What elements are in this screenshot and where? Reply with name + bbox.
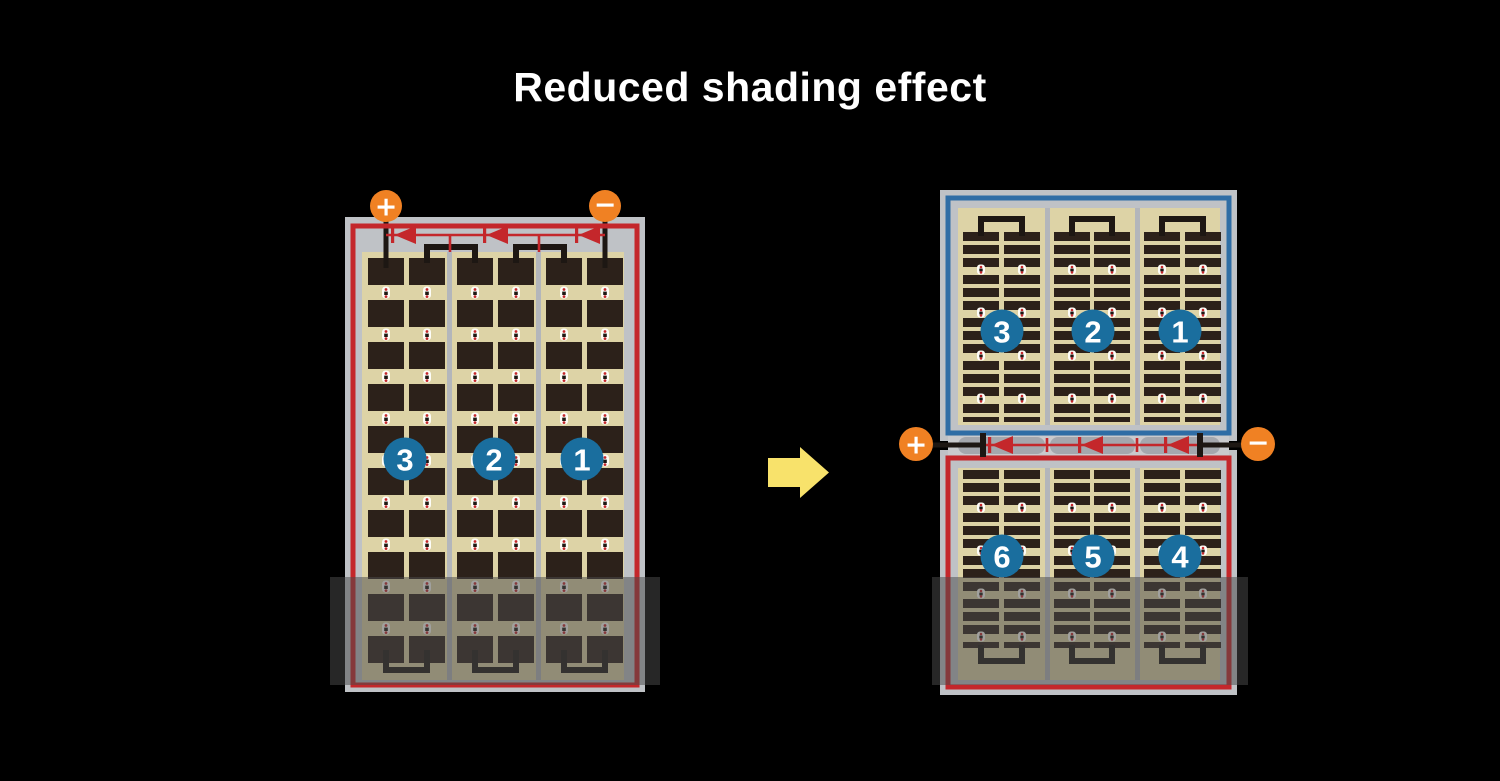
string-badge-label: 5 <box>1084 540 1101 575</box>
string-badge: 2 <box>1072 310 1115 353</box>
transform-arrow-icon <box>768 447 829 498</box>
string-badge: 1 <box>1159 310 1202 353</box>
string-badge: 4 <box>1159 535 1202 578</box>
string-badge-label: 2 <box>485 443 502 478</box>
after-string-divider <box>1045 208 1050 425</box>
minus-terminal-label: − <box>594 190 617 221</box>
string-badge-label: 2 <box>1084 315 1101 350</box>
string-badge-label: 3 <box>993 315 1010 350</box>
string-badge: 1 <box>561 438 604 481</box>
string-badge: 3 <box>981 310 1024 353</box>
string-badge: 3 <box>384 438 427 481</box>
minus-terminal-label: − <box>1247 428 1270 459</box>
after-top-string-badges: 3 2 1 <box>981 310 1202 353</box>
after-string-divider <box>1135 208 1140 425</box>
before-minus-terminal: − <box>589 190 621 223</box>
after-plus-terminal: + <box>899 427 933 461</box>
string-badge-label: 6 <box>993 540 1010 575</box>
plus-terminal-label: + <box>905 430 928 461</box>
plus-terminal-label: + <box>375 192 398 223</box>
after-top-half: 3 2 1 <box>940 190 1237 441</box>
after-module: 3 2 1 <box>899 190 1275 695</box>
string-badge: 5 <box>1072 535 1115 578</box>
after-junction-bus <box>932 433 1242 457</box>
string-badge: 6 <box>981 535 1024 578</box>
before-module: 3 2 1 + − <box>330 190 660 693</box>
string-badge-label: 4 <box>1171 540 1189 575</box>
string-badge-label: 1 <box>1171 315 1188 350</box>
string-badge-label: 3 <box>396 443 413 478</box>
after-minus-terminal: − <box>1241 427 1275 461</box>
before-shading-overlay <box>330 577 660 685</box>
string-badge: 2 <box>473 438 516 481</box>
diagram-canvas: Reduced shading effect <box>0 0 1500 781</box>
before-string-badges: 3 2 1 <box>384 438 604 481</box>
string-badge-label: 1 <box>573 443 590 478</box>
after-bottom-string-badges: 6 5 4 <box>981 535 1202 578</box>
before-plus-terminal: + <box>370 190 402 223</box>
shading-effect-diagram: 3 2 1 + − <box>0 0 1500 781</box>
after-shading-overlay <box>932 577 1248 685</box>
